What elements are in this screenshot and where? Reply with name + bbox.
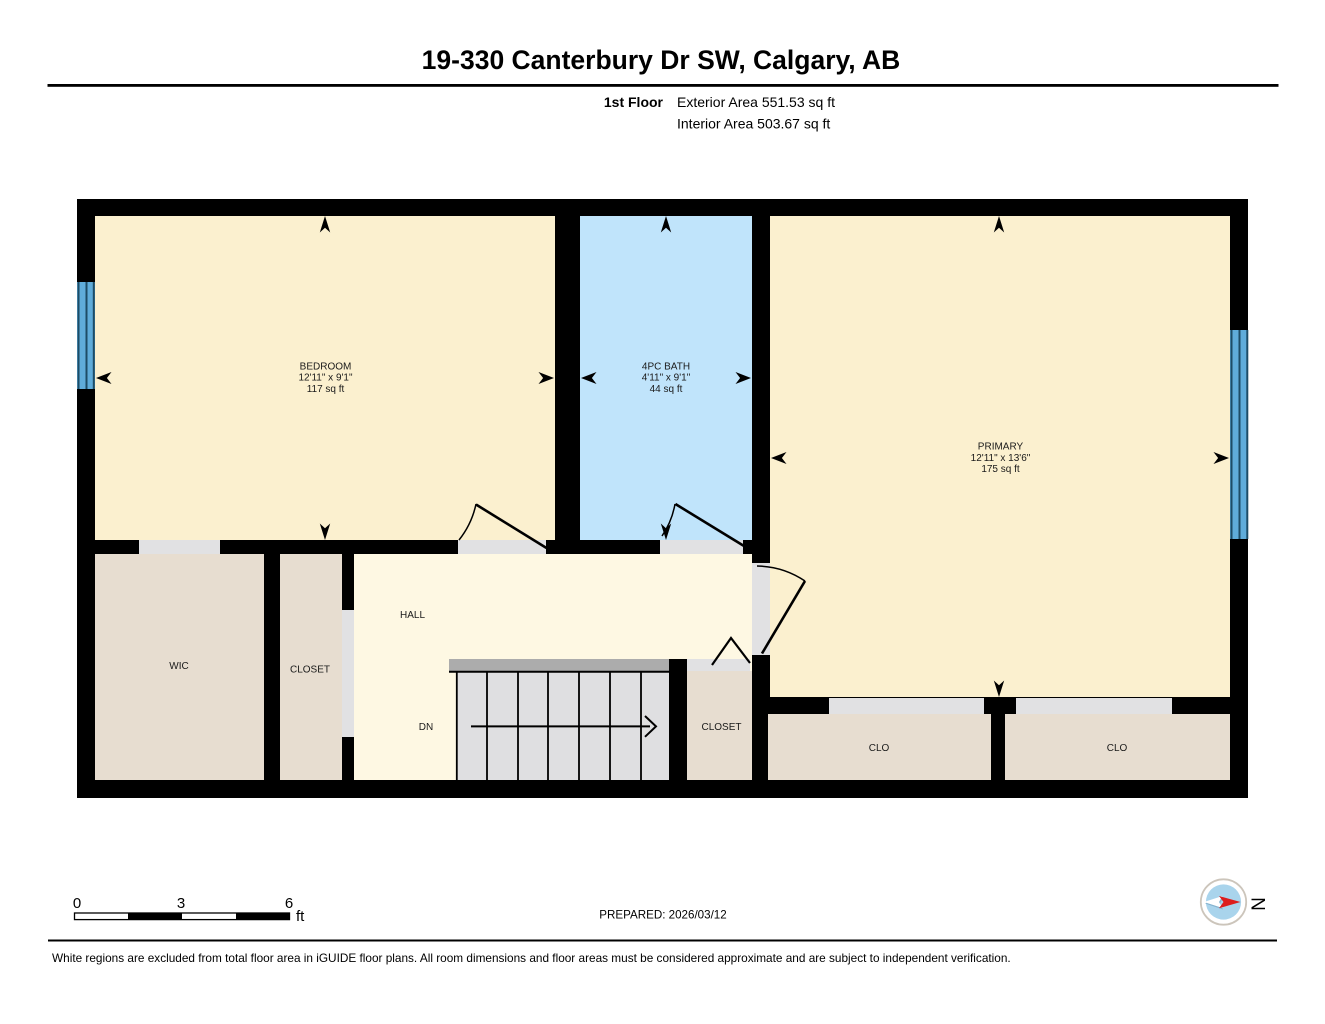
svg-text:CLOSET: CLOSET	[701, 722, 741, 733]
svg-text:ft: ft	[296, 908, 305, 925]
svg-text:Exterior Area 551.53 sq ft: Exterior Area 551.53 sq ft	[677, 94, 835, 110]
svg-text:CLO: CLO	[869, 743, 890, 754]
svg-text:White regions are excluded fro: White regions are excluded from total fl…	[52, 951, 1011, 965]
svg-text:CLOSET: CLOSET	[290, 664, 330, 675]
svg-text:N: N	[1247, 897, 1268, 911]
svg-text:WIC: WIC	[169, 661, 188, 672]
svg-text:3: 3	[177, 895, 185, 912]
svg-text:4'11" x 9'1": 4'11" x 9'1"	[642, 373, 691, 384]
svg-text:19-330 Canterbury Dr SW, Calga: 19-330 Canterbury Dr SW, Calgary, AB	[422, 45, 901, 75]
svg-text:PRIMARY: PRIMARY	[978, 442, 1024, 453]
svg-text:PREPARED: 2026/03/12: PREPARED: 2026/03/12	[599, 909, 726, 922]
svg-text:1st Floor: 1st Floor	[604, 94, 664, 110]
svg-text:44 sq ft: 44 sq ft	[650, 384, 683, 395]
svg-text:117 sq ft: 117 sq ft	[307, 384, 345, 395]
svg-text:CLO: CLO	[1107, 743, 1128, 754]
svg-text:BEDROOM: BEDROOM	[300, 362, 352, 373]
svg-text:DN: DN	[419, 722, 433, 733]
svg-text:HALL: HALL	[400, 610, 425, 621]
svg-text:12'11" x 13'6": 12'11" x 13'6"	[971, 453, 1031, 464]
svg-text:4PC BATH: 4PC BATH	[642, 362, 690, 373]
svg-text:Interior Area 503.67 sq ft: Interior Area 503.67 sq ft	[677, 116, 830, 132]
svg-text:0: 0	[73, 895, 81, 912]
svg-text:12'11" x 9'1": 12'11" x 9'1"	[298, 373, 353, 384]
svg-text:175 sq ft: 175 sq ft	[981, 464, 1020, 475]
svg-text:6: 6	[285, 895, 293, 912]
